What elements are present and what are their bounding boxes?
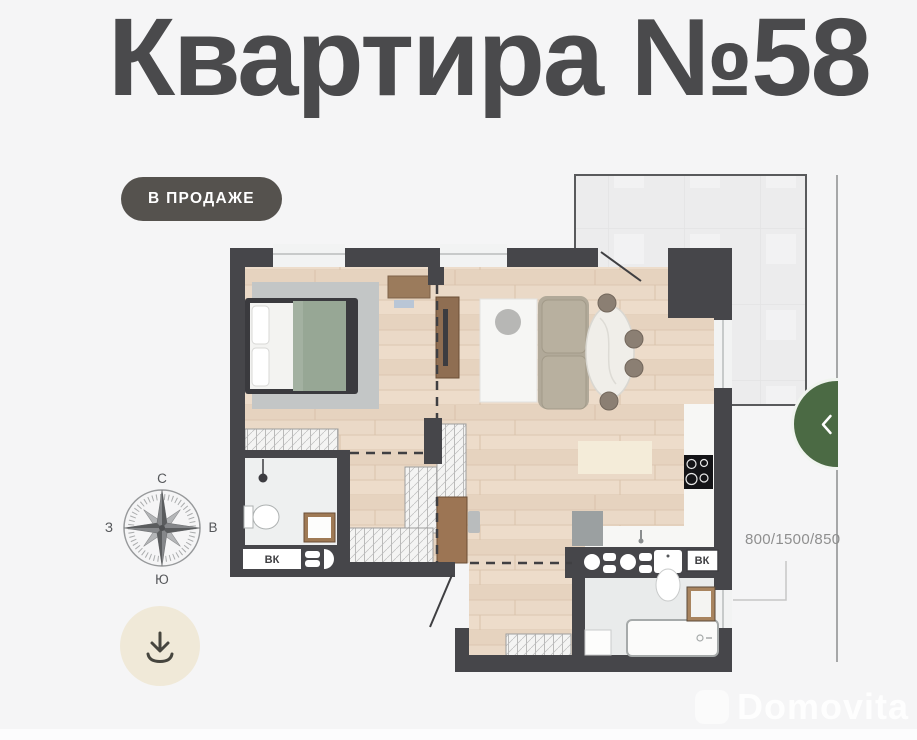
pouf bbox=[495, 309, 521, 335]
sink-vanity bbox=[304, 513, 335, 542]
compass-label-south: Ю bbox=[155, 572, 169, 587]
watermark-brand: Domovita bbox=[737, 686, 909, 728]
wardrobe bbox=[345, 528, 433, 563]
compass-label-east: В bbox=[208, 520, 217, 535]
desk bbox=[388, 276, 430, 298]
sink-vanity bbox=[687, 587, 715, 621]
dimension-leader-line bbox=[733, 561, 786, 600]
kitchen-island bbox=[578, 441, 652, 474]
wardrobe bbox=[405, 467, 437, 533]
vk-label-right: ВК bbox=[695, 555, 710, 567]
wardrobe bbox=[506, 634, 571, 657]
laptop bbox=[394, 300, 414, 308]
compass-label-west: З bbox=[105, 520, 113, 535]
watermark-logo-icon bbox=[695, 690, 729, 724]
toilet bbox=[654, 550, 682, 601]
tv-console bbox=[436, 297, 459, 378]
toilet bbox=[244, 505, 279, 529]
cooktop bbox=[684, 455, 713, 489]
compass-label-north: С bbox=[157, 471, 167, 486]
dimension-label: 800/1500/850 bbox=[745, 531, 840, 548]
fridge bbox=[572, 511, 603, 546]
collapse-button[interactable] bbox=[789, 374, 838, 474]
dining-table bbox=[586, 306, 634, 398]
window bbox=[440, 244, 507, 267]
hall-cabinet bbox=[437, 497, 467, 563]
download-button[interactable] bbox=[120, 606, 200, 686]
hall-shelf bbox=[468, 511, 480, 533]
window bbox=[273, 244, 345, 267]
entrance-door bbox=[430, 575, 452, 627]
sofa bbox=[538, 296, 589, 409]
compass-rose: С Ю З В bbox=[100, 468, 220, 590]
bottom-band bbox=[0, 729, 917, 740]
washing-machine bbox=[585, 630, 611, 655]
bed bbox=[245, 298, 358, 394]
vk-label-left: ВК bbox=[265, 554, 280, 566]
watermark: Domovita bbox=[695, 686, 909, 728]
apartment-listing-page: { "page": { "title": "Квартира №58", "st… bbox=[0, 0, 917, 740]
download-icon bbox=[140, 625, 180, 667]
chevron-left-icon bbox=[820, 413, 833, 436]
bathtub bbox=[627, 620, 718, 656]
